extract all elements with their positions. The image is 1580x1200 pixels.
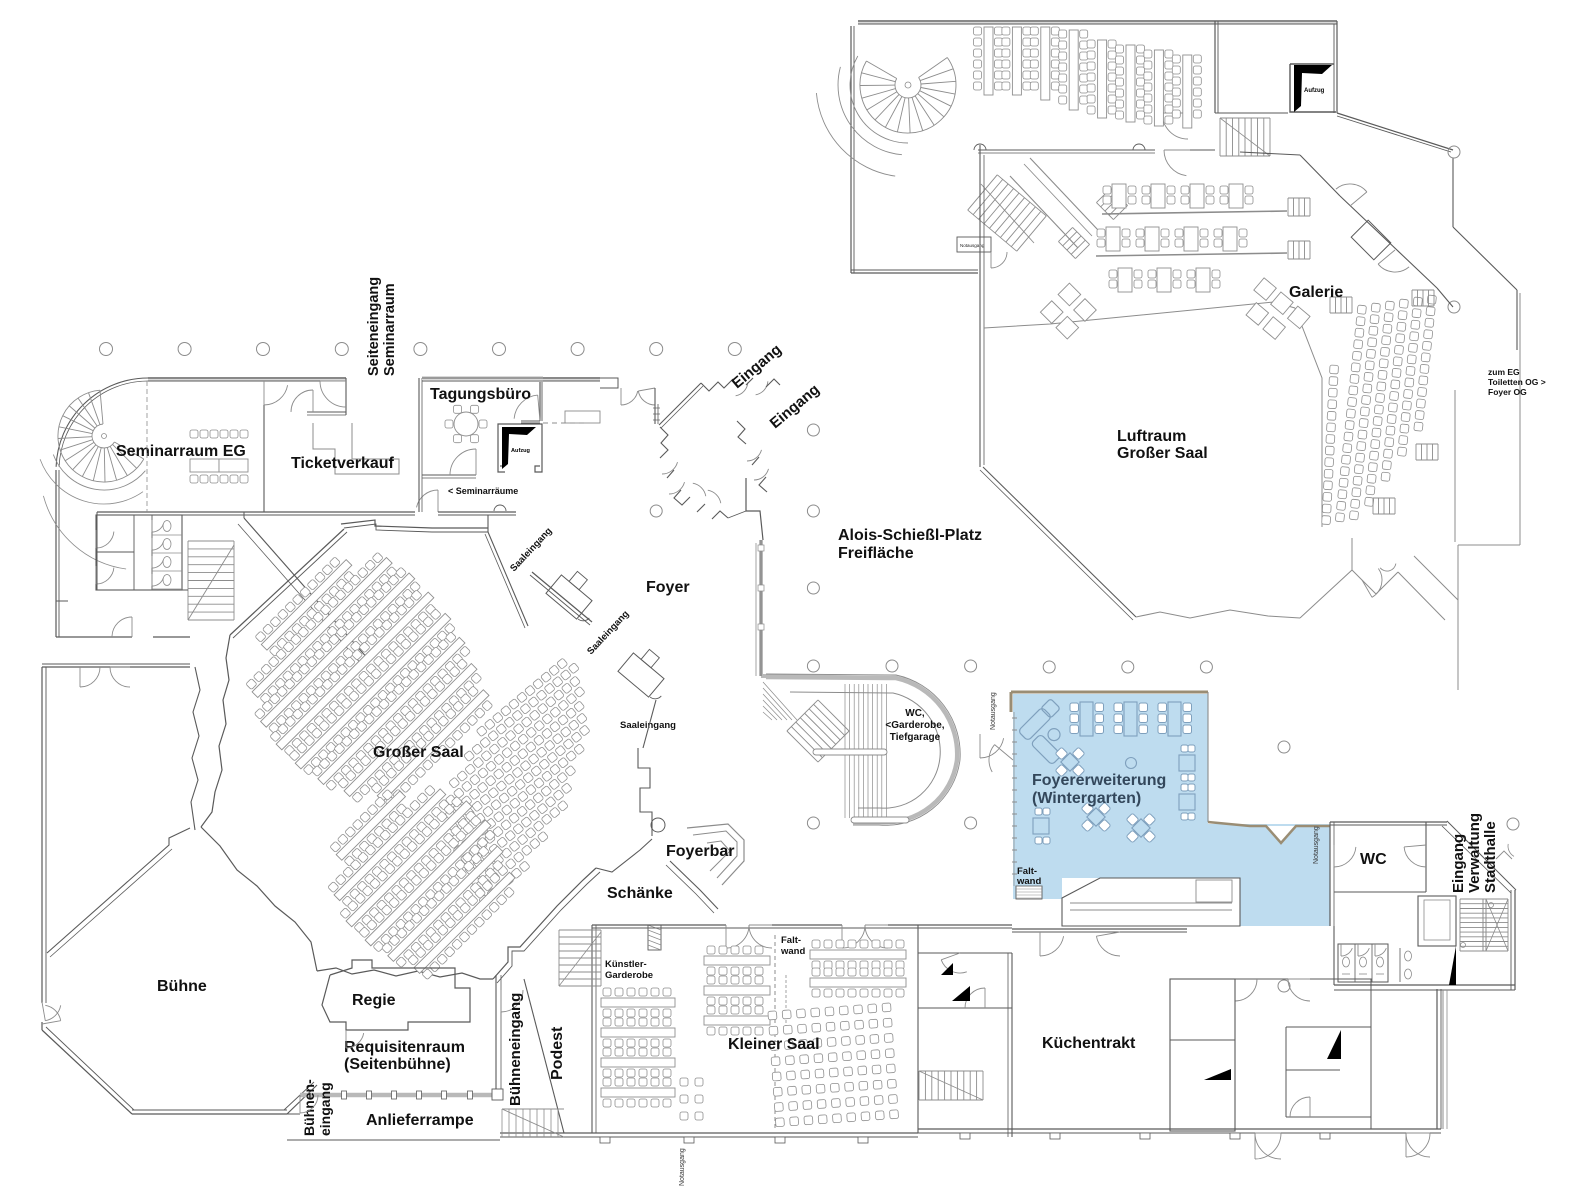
svg-text:Notausgang: Notausgang — [960, 243, 985, 248]
svg-text:Toiletten OG >: Toiletten OG > — [1488, 377, 1546, 387]
svg-text:Stadthalle: Stadthalle — [1482, 821, 1499, 893]
svg-text:Großer Saal: Großer Saal — [1117, 445, 1208, 462]
svg-text:Seminarraum EG: Seminarraum EG — [116, 443, 246, 460]
svg-text:Aufzug: Aufzug — [1304, 88, 1325, 94]
svg-text:(Seitenbühne): (Seitenbühne) — [344, 1056, 451, 1073]
svg-text:Foyer OG: Foyer OG — [1488, 387, 1527, 397]
svg-text:wand: wand — [1016, 876, 1041, 887]
svg-text:WC,: WC, — [905, 708, 925, 719]
svg-text:Anlieferrampe: Anlieferrampe — [366, 1112, 474, 1129]
svg-text:Küchentrakt: Küchentrakt — [1042, 1035, 1136, 1052]
svg-text:WC: WC — [1360, 851, 1387, 868]
svg-text:<Garderobe,: <Garderobe, — [885, 720, 944, 731]
svg-text:Foyerbar: Foyerbar — [666, 843, 734, 860]
svg-text:Notausgang: Notausgang — [1313, 826, 1320, 864]
svg-text:Tiefgarage: Tiefgarage — [890, 732, 941, 743]
svg-text:Luftraum: Luftraum — [1117, 428, 1186, 445]
svg-text:Garderobe: Garderobe — [605, 970, 653, 981]
svg-text:Bühne: Bühne — [157, 978, 207, 995]
svg-text:Bühnen-: Bühnen- — [301, 1079, 317, 1136]
svg-text:Verwaltung: Verwaltung — [1466, 813, 1483, 893]
svg-text:Freifläche: Freifläche — [838, 545, 914, 562]
svg-text:Falt-: Falt- — [781, 935, 801, 946]
svg-text:Ticketverkauf: Ticketverkauf — [291, 455, 395, 472]
svg-text:Notausgang: Notausgang — [679, 1148, 686, 1186]
svg-text:Seiteneingang: Seiteneingang — [366, 277, 382, 376]
svg-text:Tagungsbüro: Tagungsbüro — [430, 386, 531, 403]
svg-text:< Seminarräume: < Seminarräume — [448, 486, 518, 496]
svg-text:Requisitenraum: Requisitenraum — [344, 1039, 465, 1056]
svg-text:Schänke: Schänke — [607, 885, 673, 902]
svg-text:Notausgang: Notausgang — [990, 692, 997, 730]
svg-text:Foyererweiterung: Foyererweiterung — [1032, 772, 1166, 789]
svg-text:Bühneneingang: Bühneneingang — [507, 993, 524, 1106]
svg-text:Aufzug: Aufzug — [511, 448, 531, 454]
svg-text:wand: wand — [780, 946, 805, 957]
svg-text:Eingang: Eingang — [1450, 834, 1467, 893]
svg-text:Künstler-: Künstler- — [605, 959, 647, 970]
svg-text:Großer Saal: Großer Saal — [373, 744, 464, 761]
svg-text:Regie: Regie — [352, 992, 396, 1009]
svg-text:Foyer: Foyer — [646, 579, 690, 596]
svg-text:Seminarraum: Seminarraum — [382, 283, 398, 376]
svg-text:(Wintergarten): (Wintergarten) — [1032, 790, 1141, 807]
svg-text:Podest: Podest — [549, 1026, 566, 1080]
svg-text:Alois-Schießl-Platz: Alois-Schießl-Platz — [838, 527, 982, 544]
svg-text:eingang: eingang — [317, 1082, 333, 1136]
svg-text:zum EG: zum EG — [1488, 367, 1520, 377]
svg-text:Galerie: Galerie — [1289, 284, 1343, 301]
svg-text:Kleiner Saal: Kleiner Saal — [728, 1036, 820, 1053]
